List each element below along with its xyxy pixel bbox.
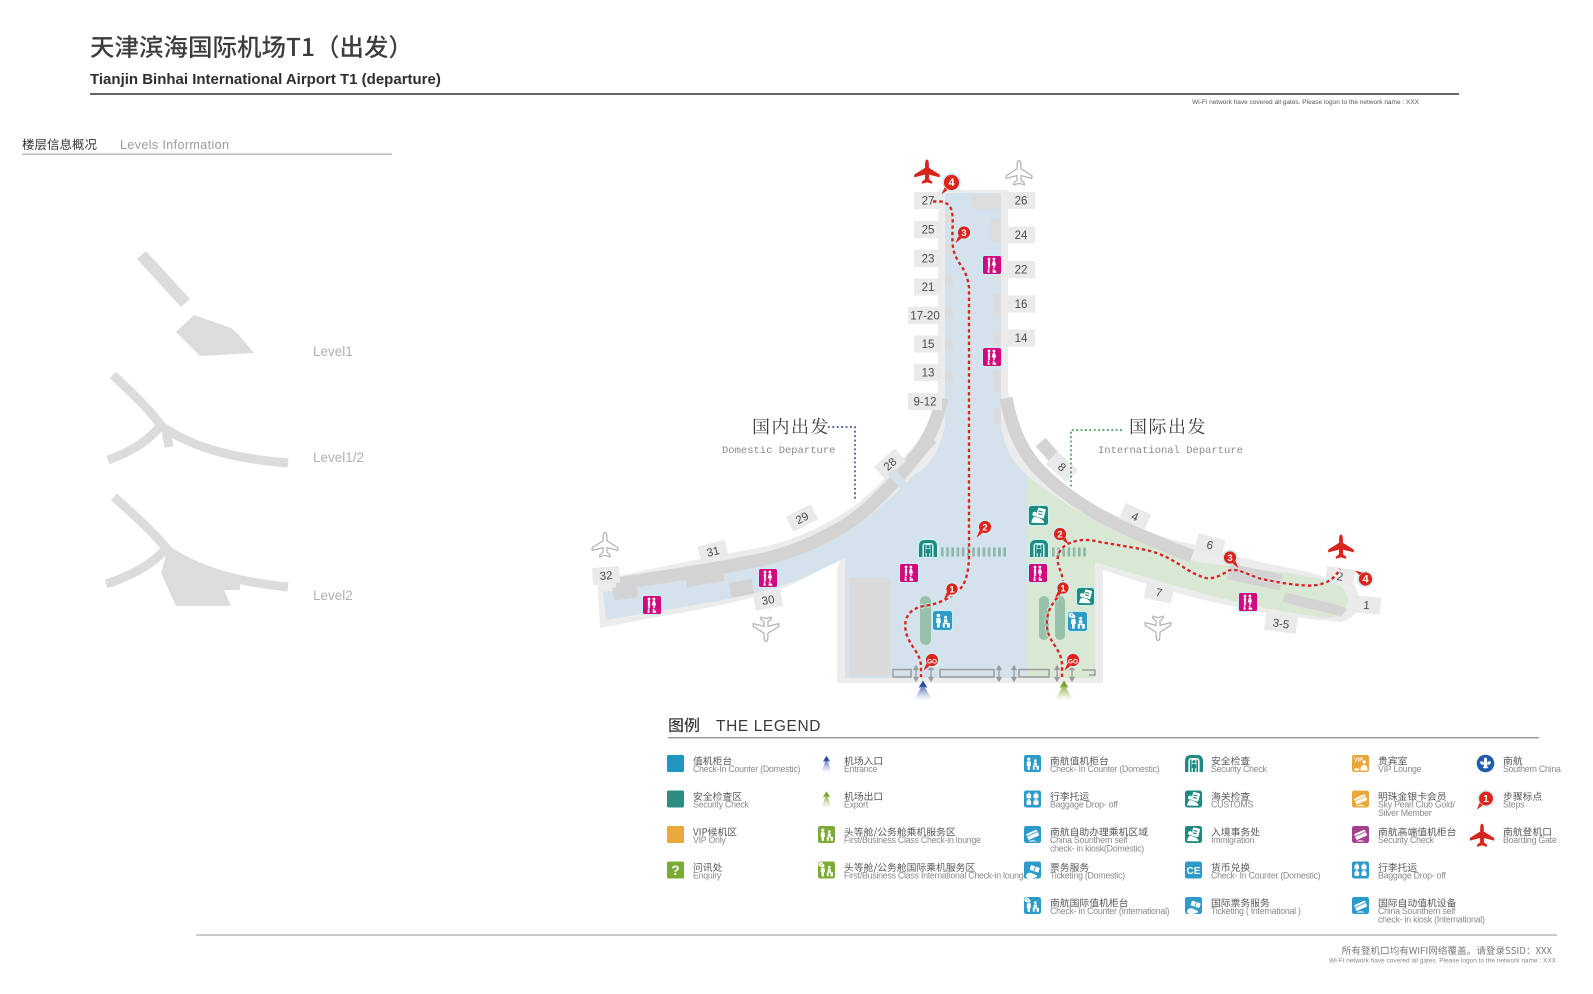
svg-text:Levels Information: Levels Information — [120, 138, 229, 152]
svg-text:Baggage Drop- off: Baggage Drop- off — [1378, 871, 1446, 881]
svg-text:International Departure: International Departure — [1098, 445, 1243, 457]
svg-text:First/Business Class Check-in: First/Business Class Check-in lounge — [844, 835, 981, 845]
svg-text:Steps: Steps — [1503, 800, 1525, 810]
svg-text:Silver Member: Silver Member — [1378, 808, 1432, 818]
svg-text:First/Business Class Internati: First/Business Class International Check… — [844, 871, 1028, 881]
svg-text:Tianjin Binhai International A: Tianjin Binhai International Airport T1 … — [90, 71, 441, 88]
svg-text:Ticketing ( International ): Ticketing ( International ) — [1211, 906, 1301, 916]
svg-text:Immigration: Immigration — [1211, 835, 1255, 845]
svg-text:Wi-Fi network have covered all: Wi-Fi network have covered all gates. Pl… — [1192, 99, 1420, 106]
svg-text:21: 21 — [922, 282, 935, 294]
svg-text:4: 4 — [948, 177, 955, 189]
svg-text:Check- In Counter (Domestic): Check- In Counter (Domestic) — [1211, 871, 1321, 881]
svg-text:24: 24 — [1015, 230, 1028, 242]
svg-text:1: 1 — [1060, 583, 1066, 594]
svg-text:Level1: Level1 — [313, 344, 353, 359]
svg-text:26: 26 — [1015, 196, 1028, 208]
svg-text:VIP: VIP — [1354, 757, 1363, 763]
svg-text:17-20: 17-20 — [910, 311, 939, 323]
svg-text:14: 14 — [1015, 333, 1028, 345]
svg-text:2: 2 — [1057, 529, 1062, 540]
svg-text:1: 1 — [1363, 600, 1370, 613]
svg-text:?: ? — [671, 863, 679, 878]
svg-text:27: 27 — [922, 196, 935, 208]
svg-text:Southern China: Southern China — [1503, 764, 1561, 774]
svg-text:23: 23 — [922, 254, 935, 266]
svg-text:Export: Export — [844, 800, 869, 810]
svg-text:Level1/2: Level1/2 — [313, 450, 364, 465]
svg-text:CE: CE — [1187, 866, 1201, 877]
svg-text:4: 4 — [1362, 573, 1369, 585]
svg-text:Entrance: Entrance — [844, 764, 878, 774]
svg-text:9-12: 9-12 — [913, 397, 936, 409]
svg-text:Security Check: Security Check — [1378, 835, 1435, 845]
svg-text:3: 3 — [961, 228, 966, 239]
svg-text:check- in kiosk(Domestic): check- in kiosk(Domestic) — [1050, 844, 1144, 854]
svg-text:Domestic Departure: Domestic Departure — [722, 445, 835, 457]
svg-text:Level2: Level2 — [313, 588, 353, 603]
svg-text:Boarding Gate: Boarding Gate — [1503, 835, 1557, 845]
svg-text:3: 3 — [1227, 553, 1232, 564]
svg-text:VIP Only: VIP Only — [693, 835, 726, 845]
svg-text:30: 30 — [761, 594, 776, 608]
svg-text:Wi-Fi network have covered all: Wi-Fi network have covered all gates. Pl… — [1329, 958, 1557, 965]
svg-text:Check-In Counter (Domestic): Check-In Counter (Domestic) — [693, 764, 800, 774]
svg-text:GO: GO — [1068, 658, 1078, 665]
svg-text:15: 15 — [922, 339, 935, 351]
svg-text:2: 2 — [982, 522, 987, 533]
svg-text:3-5: 3-5 — [1272, 617, 1290, 631]
svg-text:CUSTOMS: CUSTOMS — [1211, 800, 1253, 810]
svg-text:VIP Lounge: VIP Lounge — [1378, 764, 1422, 774]
svg-text:Check- in Counter (Internatio: Check- in Counter (International) — [1050, 906, 1170, 916]
svg-text:1: 1 — [1483, 793, 1489, 805]
svg-text:Security Check: Security Check — [693, 800, 750, 810]
svg-text:check- in kiosk (International: check- in kiosk (International) — [1378, 915, 1485, 925]
svg-text:THE LEGEND: THE LEGEND — [716, 718, 821, 735]
svg-text:22: 22 — [1015, 265, 1028, 277]
svg-text:Security Check: Security Check — [1211, 764, 1268, 774]
svg-text:Baggage Drop- off: Baggage Drop- off — [1050, 800, 1118, 810]
svg-text:13: 13 — [922, 368, 935, 380]
svg-text:32: 32 — [599, 570, 613, 583]
svg-text:Enquiry: Enquiry — [693, 871, 722, 881]
svg-text:Check- In Counter (Domestic): Check- In Counter (Domestic) — [1050, 764, 1160, 774]
svg-text:16: 16 — [1015, 299, 1028, 311]
svg-text:Ticketing (Domestic): Ticketing (Domestic) — [1050, 871, 1125, 881]
svg-text:1: 1 — [949, 584, 955, 595]
svg-text:GO: GO — [927, 658, 937, 665]
svg-text:25: 25 — [922, 225, 935, 237]
